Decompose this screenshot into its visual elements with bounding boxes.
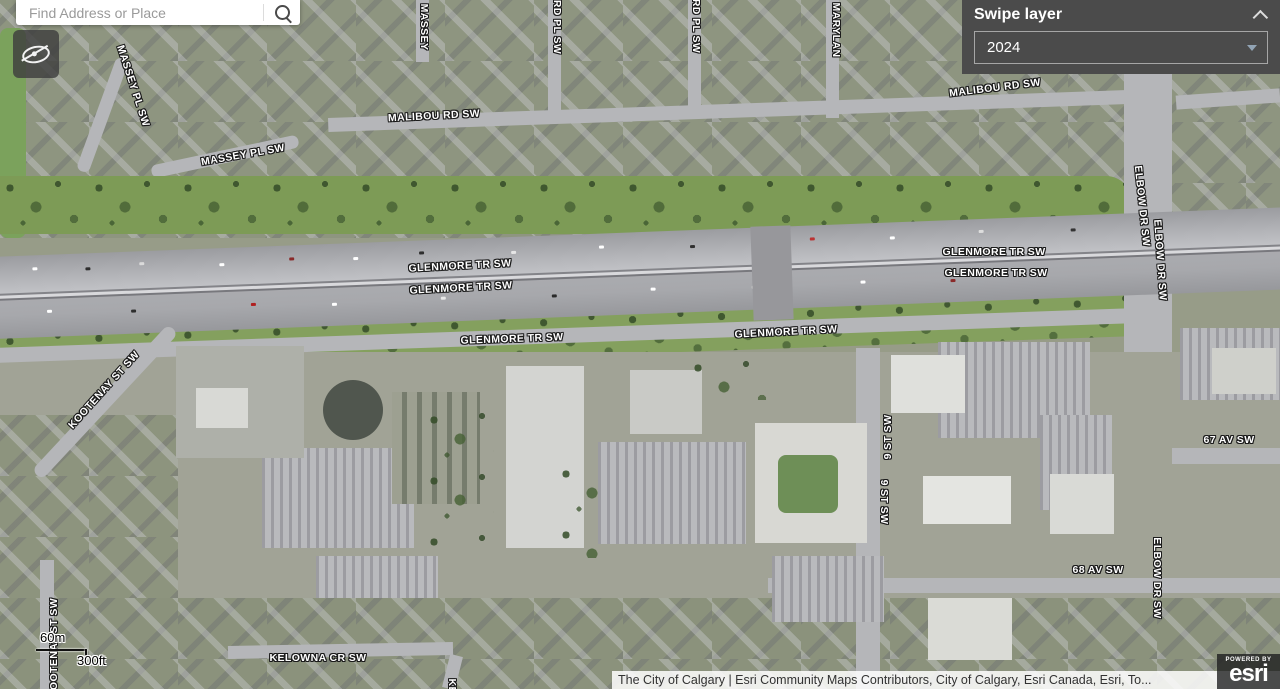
street-label: 9 ST SW	[882, 415, 894, 460]
caret-down-icon	[1247, 45, 1257, 51]
street-label: KELOWNA CR SW	[446, 679, 458, 689]
search-box	[16, 0, 300, 25]
attribution-text: The City of Calgary | Esri Community Map…	[612, 671, 1280, 687]
search-button[interactable]	[264, 0, 300, 25]
decor-parking-lot-e	[772, 556, 884, 622]
street-label: MASSEY	[418, 4, 430, 51]
search-icon	[275, 5, 290, 20]
chevron-up-icon[interactable]	[1253, 9, 1269, 25]
decor-tree-patch-1	[424, 408, 494, 548]
street-label: KELOWNA CR SW	[270, 652, 367, 664]
street-label: GLENMORE TR SW	[942, 246, 1045, 258]
scale-metric-label: 60m	[40, 630, 65, 645]
street-label: 67 AV SW	[1203, 434, 1254, 446]
eye-slash-icon	[21, 43, 52, 65]
decor-tree-patch-3	[688, 356, 772, 400]
attribution-bar: The City of Calgary | Esri Community Map…	[612, 671, 1280, 689]
decor-parking-lot-f	[316, 556, 438, 598]
decor-parking-lot-b	[598, 442, 746, 544]
esri-logo: esri	[1217, 663, 1280, 685]
scale-bar-line	[36, 649, 86, 651]
map-viewport[interactable]: MASSEY PL SW MASSEY PL SW MASSEY RD PL S…	[0, 0, 1280, 689]
street-label: 68 AV SW	[1072, 564, 1123, 576]
street-label: RD PL SW	[551, 0, 563, 54]
search-input[interactable]	[16, 0, 263, 25]
decor-building-elbow-east	[1212, 348, 1276, 394]
decor-building-south	[928, 598, 1012, 660]
esri-logo-block: POWERED BY esri	[1217, 654, 1280, 689]
decor-tree-patch-2	[556, 462, 600, 558]
street-label: 9 ST SW	[878, 480, 890, 525]
decor-building-white-1	[196, 388, 248, 428]
street-label: ELBOW DR SW	[1151, 537, 1163, 618]
layer-select[interactable]: 2024	[974, 31, 1268, 64]
decor-highway-median	[0, 246, 1280, 299]
scale-imperial-label: 300ft	[77, 653, 106, 668]
decor-building-ne	[891, 355, 965, 413]
street-label: RD PL SW	[690, 0, 702, 53]
decor-building-e	[1050, 474, 1114, 534]
street-label: MARYLAN	[830, 3, 842, 58]
decor-road-67av	[1172, 448, 1280, 464]
swipe-tool-button[interactable]	[13, 30, 59, 78]
decor-hotel-courtyard	[778, 455, 838, 513]
panel-title: Swipe layer	[974, 6, 1062, 24]
decor-residential-left	[0, 415, 178, 615]
swipe-layer-panel: Swipe layer 2024	[962, 0, 1280, 74]
decor-building-round	[323, 380, 383, 440]
decor-building-se	[923, 476, 1011, 524]
street-label: GLENMORE TR SW	[944, 267, 1047, 279]
layer-select-value: 2024	[987, 39, 1020, 56]
decor-overpass	[750, 225, 793, 320]
